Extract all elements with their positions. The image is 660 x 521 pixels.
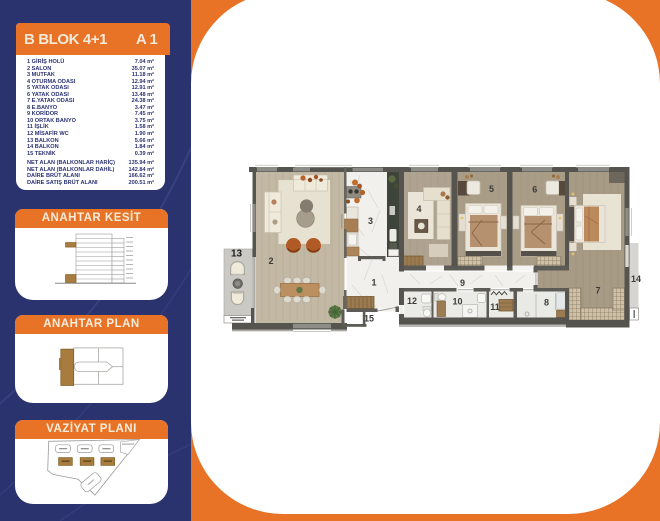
svg-text:8: 8 xyxy=(544,298,549,308)
svg-text:1: 1 xyxy=(371,278,376,288)
svg-text:14: 14 xyxy=(631,274,641,284)
svg-text:10: 10 xyxy=(452,297,462,307)
svg-text:12: 12 xyxy=(407,296,417,306)
svg-text:5: 5 xyxy=(489,184,494,194)
svg-text:6: 6 xyxy=(532,185,537,195)
svg-text:13: 13 xyxy=(231,249,243,260)
svg-text:9: 9 xyxy=(460,278,465,288)
svg-text:11: 11 xyxy=(490,302,500,312)
svg-text:4: 4 xyxy=(416,204,421,214)
svg-text:15: 15 xyxy=(364,314,374,324)
svg-text:7: 7 xyxy=(595,286,600,296)
svg-text:2: 2 xyxy=(268,256,273,266)
svg-text:3: 3 xyxy=(368,216,373,226)
